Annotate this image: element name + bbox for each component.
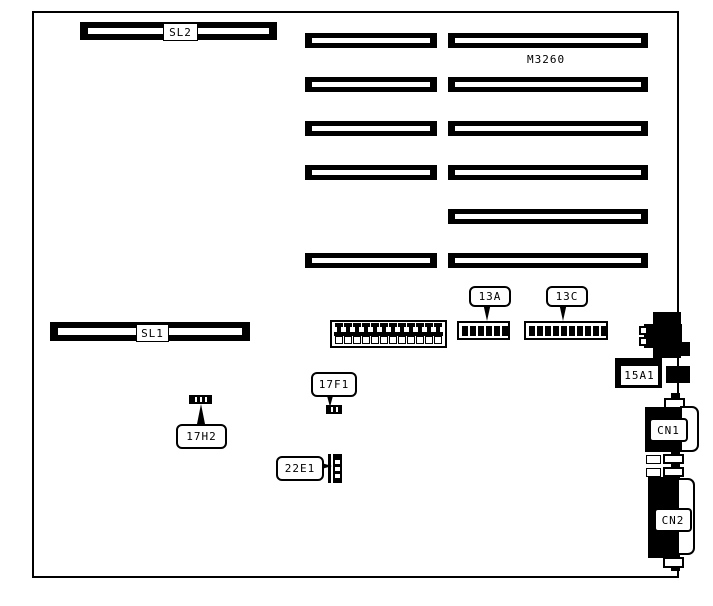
expansion-slot bbox=[448, 253, 648, 268]
sq-element bbox=[537, 326, 543, 336]
cn2-top-screw-tab bbox=[646, 468, 661, 477]
sq-element bbox=[577, 326, 583, 336]
chip-marking-text: M3260 bbox=[527, 54, 565, 65]
tpin-element bbox=[364, 323, 368, 332]
bsq-element bbox=[353, 336, 361, 344]
sq-element bbox=[462, 326, 468, 336]
bsq-element bbox=[371, 336, 379, 344]
slot-sl1-label: SL1 bbox=[136, 324, 169, 342]
tpin-element bbox=[346, 323, 350, 332]
tpin-element bbox=[337, 323, 341, 332]
tpin-element bbox=[409, 323, 413, 332]
jumper-17h2-label: 17H2 bbox=[176, 424, 227, 449]
bsq-element bbox=[425, 336, 433, 344]
expansion-slot bbox=[448, 165, 648, 180]
expansion-slot bbox=[448, 77, 648, 92]
connector-15a1-stub bbox=[666, 366, 690, 383]
expansion-slot bbox=[448, 33, 648, 48]
tpin-element bbox=[355, 323, 359, 332]
expansion-slot bbox=[305, 33, 437, 48]
motherboard-diagram: SL2 SL1 M3260 13A 13C 15A1 CN1 bbox=[0, 0, 713, 606]
sq-element bbox=[593, 326, 599, 336]
tpin-element bbox=[400, 323, 404, 332]
bsq-element bbox=[380, 336, 388, 344]
tpin-element bbox=[382, 323, 386, 332]
sq-element bbox=[478, 326, 484, 336]
dip-switch-13c bbox=[524, 321, 608, 340]
pin-header-top-row bbox=[335, 323, 442, 332]
jumper-22e1-label: 22E1 bbox=[276, 456, 324, 481]
expansion-slot bbox=[448, 121, 648, 136]
bsq-element bbox=[389, 336, 397, 344]
tpin-element bbox=[427, 323, 431, 332]
sq-element bbox=[601, 326, 607, 336]
sq-element bbox=[529, 326, 535, 336]
sq-element bbox=[561, 326, 567, 336]
tpin-element bbox=[391, 323, 395, 332]
bsq-element bbox=[335, 336, 343, 344]
bsq-element bbox=[407, 336, 415, 344]
tick-element bbox=[331, 407, 333, 412]
keyboard-connector bbox=[653, 312, 681, 324]
connector-cn1-label: CN1 bbox=[649, 418, 688, 442]
sq-element bbox=[569, 326, 575, 336]
cn2-bottom-screw bbox=[663, 557, 684, 568]
dip-switch-13a bbox=[457, 321, 510, 340]
dip-13c-label: 13C bbox=[546, 286, 588, 307]
dip-13a-label: 13A bbox=[469, 286, 511, 307]
tick-element bbox=[335, 467, 340, 471]
jumper-22e1 bbox=[333, 454, 342, 483]
bsq-element bbox=[434, 336, 442, 344]
pin-header bbox=[330, 320, 447, 348]
jumper-17h2 bbox=[189, 395, 212, 404]
keyboard-connector-notch bbox=[639, 326, 648, 335]
sq-element bbox=[502, 326, 508, 336]
tick-element bbox=[336, 407, 338, 412]
cn1-bottom-screw bbox=[663, 454, 684, 464]
keyboard-connector-tab bbox=[677, 342, 690, 356]
expansion-slot bbox=[305, 253, 437, 268]
tick-element bbox=[335, 460, 340, 464]
tpin-element bbox=[418, 323, 422, 332]
tpin-element bbox=[373, 323, 377, 332]
connector-15a1-label: 15A1 bbox=[619, 364, 660, 387]
sq-element bbox=[545, 326, 551, 336]
bsq-element bbox=[344, 336, 352, 344]
pin-header-bottom-row bbox=[335, 336, 442, 344]
sq-element bbox=[585, 326, 591, 336]
bsq-element bbox=[398, 336, 406, 344]
connector-cn2-label: CN2 bbox=[654, 508, 692, 532]
expansion-slot bbox=[305, 121, 437, 136]
sq-element bbox=[470, 326, 476, 336]
tick-element bbox=[205, 397, 207, 402]
tick-element bbox=[200, 397, 202, 402]
cn2-top-screw bbox=[663, 467, 684, 477]
bsq-element bbox=[362, 336, 370, 344]
expansion-slot bbox=[305, 77, 437, 92]
sq-element bbox=[486, 326, 492, 336]
sq-element bbox=[494, 326, 500, 336]
tpin-element bbox=[436, 323, 440, 332]
bsq-element bbox=[416, 336, 424, 344]
tick-element bbox=[335, 474, 340, 478]
expansion-slot bbox=[448, 209, 648, 224]
jumper-17f1-label: 17F1 bbox=[311, 372, 357, 397]
sq-element bbox=[553, 326, 559, 336]
cn1-bottom-screw-tab bbox=[646, 455, 661, 464]
slot-sl2-label: SL2 bbox=[163, 23, 198, 41]
jumper-17h2-pointer bbox=[197, 404, 205, 424]
keyboard-connector-notch bbox=[639, 337, 648, 346]
tick-element bbox=[195, 397, 197, 402]
expansion-slot bbox=[305, 165, 437, 180]
